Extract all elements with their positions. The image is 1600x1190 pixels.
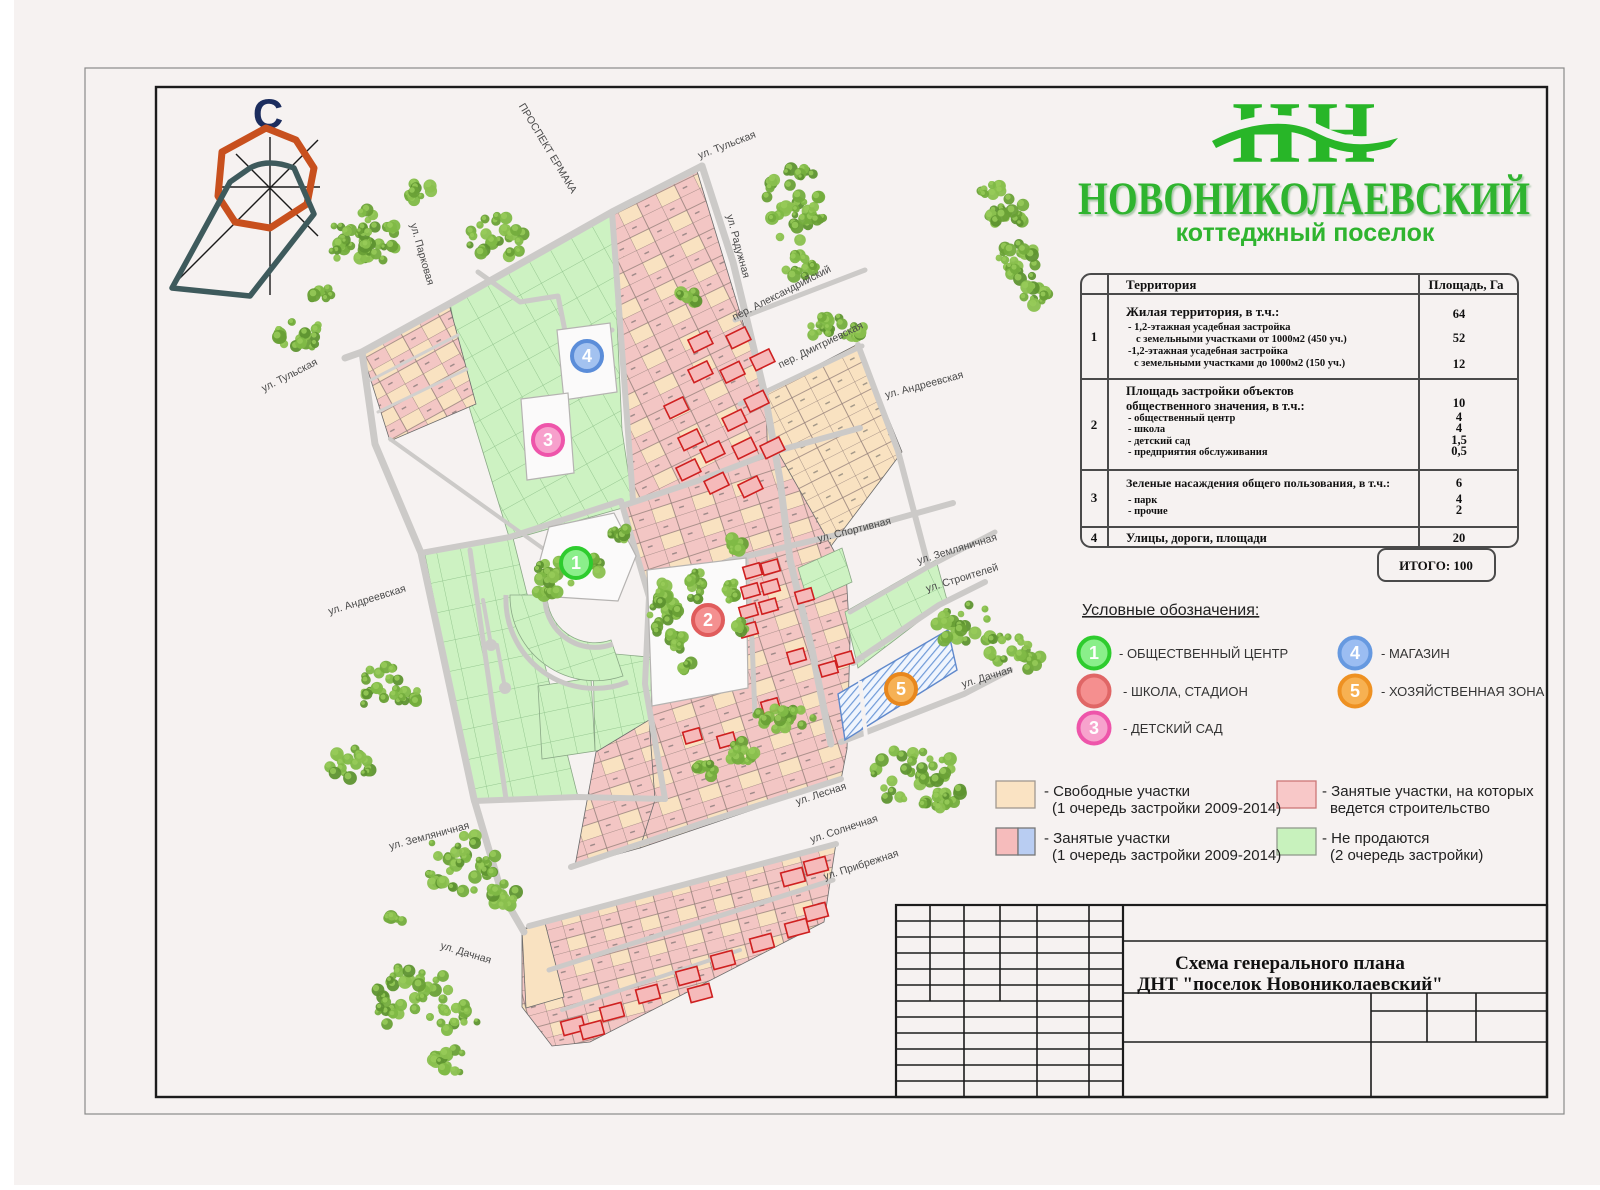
svg-text:коттеджный поселок: коттеджный поселок xyxy=(1176,219,1435,247)
svg-text:5: 5 xyxy=(1350,681,1360,701)
svg-text:5: 5 xyxy=(896,679,906,699)
svg-text:10: 10 xyxy=(1453,396,1466,410)
svg-text:- общественный центр: - общественный центр xyxy=(1128,413,1235,424)
svg-text:- ШКОЛА, СТАДИОН: - ШКОЛА, СТАДИОН xyxy=(1123,684,1248,699)
svg-text:-1,2-этажная усадебная застрой: -1,2-этажная усадебная застройка xyxy=(1128,346,1289,357)
svg-text:Условные обозначения:: Условные обозначения: xyxy=(1082,602,1259,619)
svg-text:- школа: - школа xyxy=(1128,424,1166,435)
svg-text:4: 4 xyxy=(1350,643,1360,663)
svg-text:- 1,2-этажная усадебная застро: - 1,2-этажная усадебная застройка xyxy=(1128,322,1291,333)
svg-text:2: 2 xyxy=(1091,417,1098,432)
svg-text:ИТОГО: 100: ИТОГО: 100 xyxy=(1399,558,1473,573)
svg-text:- ОБЩЕСТВЕННЫЙ ЦЕНТР: - ОБЩЕСТВЕННЫЙ ЦЕНТР xyxy=(1119,646,1288,661)
svg-text:Жилая территория, в т.ч.:: Жилая территория, в т.ч.: xyxy=(1126,304,1279,319)
svg-text:Зеленые насаждения общего поль: Зеленые насаждения общего пользования, в… xyxy=(1126,476,1390,490)
svg-text:(1 очередь застройки 2009-2014: (1 очередь застройки 2009-2014) xyxy=(1052,800,1281,817)
svg-text:ведется строительство: ведется строительство xyxy=(1330,800,1490,817)
svg-text:4: 4 xyxy=(582,346,592,366)
svg-text:20: 20 xyxy=(1453,531,1466,545)
svg-text:6: 6 xyxy=(1456,476,1462,490)
svg-text:Схема генерального плана: Схема генерального плана xyxy=(1175,953,1405,974)
svg-text:0,5: 0,5 xyxy=(1451,444,1467,458)
svg-text:с земельными участками до 1000: с земельными участками до 1000м2 (150 уч… xyxy=(1134,358,1346,369)
svg-text:12: 12 xyxy=(1453,357,1466,371)
svg-text:НОВОНИКОЛАЕВСКИЙ: НОВОНИКОЛАЕВСКИЙ xyxy=(1078,173,1530,225)
svg-text:64: 64 xyxy=(1453,307,1466,321)
svg-text:3: 3 xyxy=(1089,718,1099,738)
svg-text:- Занятые участки, на которых: - Занятые участки, на которых xyxy=(1322,783,1534,800)
svg-text:Территория: Территория xyxy=(1126,277,1196,292)
svg-text:- парк: - парк xyxy=(1128,495,1158,506)
svg-text:1: 1 xyxy=(1091,329,1098,344)
svg-text:2: 2 xyxy=(1456,503,1462,517)
svg-text:- ДЕТСКИЙ САД: - ДЕТСКИЙ САД xyxy=(1123,721,1223,736)
svg-text:- детский сад: - детский сад xyxy=(1128,436,1191,447)
svg-text:(2 очередь застройки): (2 очередь застройки) xyxy=(1330,847,1483,864)
svg-text:- Свободные участки: - Свободные участки xyxy=(1044,783,1190,800)
svg-text:- ХОЗЯЙСТВЕННАЯ ЗОНА: - ХОЗЯЙСТВЕННАЯ ЗОНА xyxy=(1381,684,1545,699)
svg-text:- прочие: - прочие xyxy=(1128,506,1168,517)
svg-text:4: 4 xyxy=(1091,530,1098,545)
svg-text:1: 1 xyxy=(1089,643,1099,663)
svg-text:- предприятия обслуживания: - предприятия обслуживания xyxy=(1128,447,1268,458)
svg-text:ДНТ "поселок Новониколаевский": ДНТ "поселок Новониколаевский" xyxy=(1137,974,1442,995)
svg-text:- Не продаются: - Не продаются xyxy=(1322,830,1429,847)
svg-text:Улицы, дороги, площади: Улицы, дороги, площади xyxy=(1126,531,1267,545)
svg-text:(1 очередь застройки 2009-2014: (1 очередь застройки 2009-2014) xyxy=(1052,847,1281,864)
svg-text:с земельными участками от 1000: с земельными участками от 1000м2 (450 уч… xyxy=(1136,334,1347,345)
svg-text:3: 3 xyxy=(543,430,553,450)
svg-text:Площадь, Га: Площадь, Га xyxy=(1429,277,1504,292)
svg-text:- МАГАЗИН: - МАГАЗИН xyxy=(1381,646,1450,661)
svg-text:- Занятые участки: - Занятые участки xyxy=(1044,830,1170,847)
svg-text:1: 1 xyxy=(571,553,581,573)
svg-text:52: 52 xyxy=(1453,331,1466,345)
svg-text:3: 3 xyxy=(1091,490,1098,505)
svg-text:2: 2 xyxy=(703,610,713,630)
svg-text:Площадь застройки объектов: Площадь застройки объектов xyxy=(1126,384,1294,398)
svg-text:общественного значения, в т.ч.: общественного значения, в т.ч.: xyxy=(1126,399,1305,413)
